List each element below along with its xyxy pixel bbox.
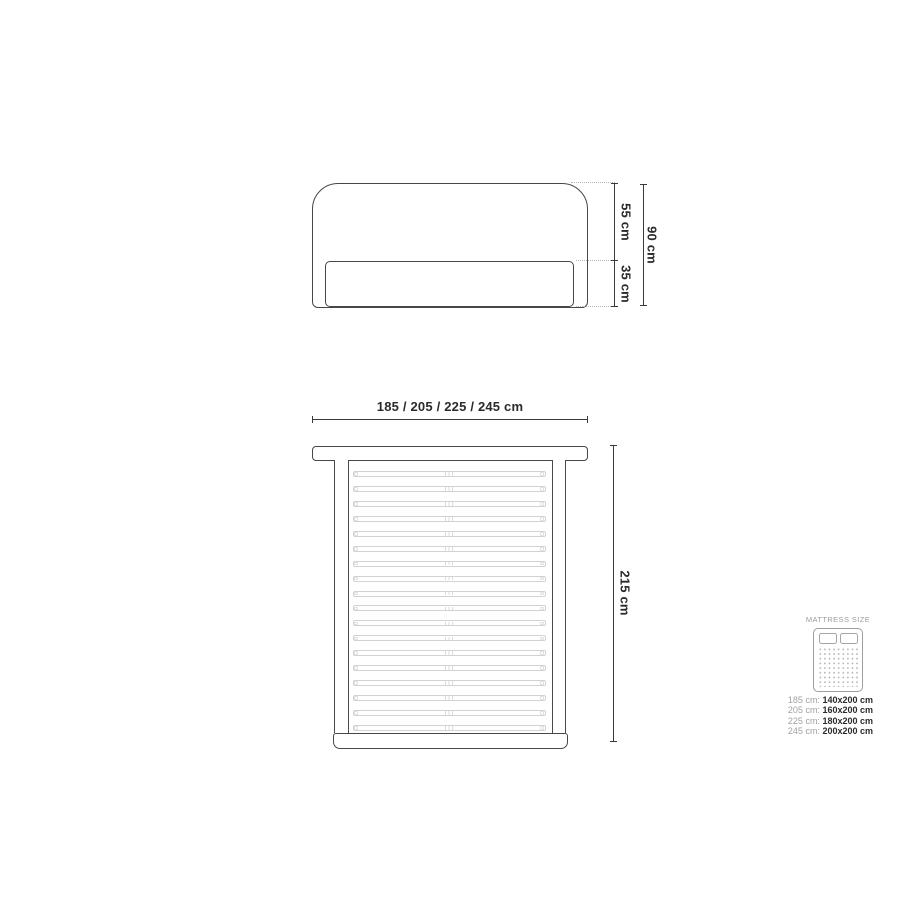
dimension-line-55-35 — [614, 183, 615, 307]
slat — [353, 501, 547, 507]
mattress-size-value: 200x200 cm — [822, 726, 873, 736]
bed-length-label: 215 cm — [618, 570, 633, 615]
right-side-rail — [552, 460, 567, 734]
slat — [353, 531, 547, 537]
dimension-tick — [640, 305, 647, 306]
slat-holder-right-icon — [540, 711, 544, 715]
slat — [353, 650, 547, 656]
mattress-size-value: 140x200 cm — [822, 695, 873, 705]
mattress-dots-pattern — [818, 647, 858, 687]
slat-holder-right-icon — [540, 637, 544, 641]
slat — [353, 546, 547, 552]
slat-center-marks — [445, 487, 453, 491]
slat-center-marks — [445, 696, 453, 700]
slat-holder-right-icon — [540, 502, 544, 506]
slat-center-marks — [445, 562, 453, 566]
slat — [353, 591, 547, 597]
extension-line-top — [571, 182, 615, 183]
slat-holder-left-icon — [354, 681, 358, 685]
slat-holder-left-icon — [354, 577, 358, 581]
slat-center-marks — [445, 681, 453, 685]
slat — [353, 710, 547, 716]
dimension-tick — [640, 184, 647, 185]
mattress-size-table: 185 cm: 140x200 cm 205 cm: 160x200 cm 22… — [760, 695, 873, 736]
dimension-tick — [611, 260, 618, 261]
bed-dimension-diagram: 55 cm 35 cm 90 cm 185 / 205 / 225 / 245 … — [0, 0, 900, 900]
mattress-icon — [813, 628, 863, 692]
headboard-top-outline — [312, 446, 588, 461]
dimension-tick — [611, 306, 618, 307]
mattress-size-row: 225 cm: 180x200 cm — [760, 716, 873, 726]
slat-holder-left-icon — [354, 666, 358, 670]
slat-holder-left-icon — [354, 547, 358, 551]
mattress-size-row: 245 cm: 200x200 cm — [760, 726, 873, 736]
dimension-line-width — [312, 419, 588, 420]
bed-width-value: 185 cm: — [788, 695, 820, 705]
slat-holder-right-icon — [540, 487, 544, 491]
slat-center-marks — [445, 577, 453, 581]
slat-holder-right-icon — [540, 517, 544, 521]
slat — [353, 561, 547, 567]
slat-center-marks — [445, 472, 453, 476]
bed-width-value: 205 cm: — [788, 705, 820, 715]
slat-holder-right-icon — [540, 622, 544, 626]
slat-center-marks — [445, 726, 453, 730]
bed-width-value: 225 cm: — [788, 716, 820, 726]
bed-width-label: 185 / 205 / 225 / 245 cm — [312, 399, 588, 414]
slat-holder-right-icon — [540, 696, 544, 700]
slat — [353, 620, 547, 626]
extension-line-bottom — [576, 306, 615, 307]
slat — [353, 576, 547, 582]
slat-holder-left-icon — [354, 651, 358, 655]
slat-center-marks — [445, 592, 453, 596]
mattress-size-value: 160x200 cm — [822, 705, 873, 715]
total-height-label: 90 cm — [645, 226, 660, 264]
pillow-left-icon — [819, 633, 838, 644]
slat-center-marks — [445, 711, 453, 715]
slat-center-marks — [445, 651, 453, 655]
slat — [353, 680, 547, 686]
mattress-size-row: 205 cm: 160x200 cm — [760, 705, 873, 715]
slat-center-marks — [445, 607, 453, 611]
slat-holder-left-icon — [354, 607, 358, 611]
slat-center-marks — [445, 532, 453, 536]
slat-center-marks — [445, 666, 453, 670]
slat-center-marks — [445, 502, 453, 506]
slat-holder-right-icon — [540, 472, 544, 476]
slat-center-marks — [445, 517, 453, 521]
slat-holder-left-icon — [354, 637, 358, 641]
slat — [353, 486, 547, 492]
slat — [353, 605, 547, 611]
slat-holder-right-icon — [540, 607, 544, 611]
slat — [353, 695, 547, 701]
slat — [353, 516, 547, 522]
dimension-tick — [587, 416, 588, 423]
dimension-line-215 — [613, 445, 614, 742]
slat-holder-left-icon — [354, 562, 358, 566]
dimension-tick — [611, 183, 618, 184]
left-side-rail — [334, 460, 349, 734]
slat — [353, 471, 547, 477]
dimension-tick — [312, 416, 313, 423]
slat-holder-right-icon — [540, 562, 544, 566]
bed-width-value: 245 cm: — [788, 726, 820, 736]
mattress-size-title: MATTRESS SIZE — [802, 615, 874, 624]
footboard-outline — [333, 733, 568, 749]
slat — [353, 725, 547, 731]
mattress-size-row: 185 cm: 140x200 cm — [760, 695, 873, 705]
extension-line-middle — [576, 260, 615, 261]
slat-holder-left-icon — [354, 532, 358, 536]
upper-height-label: 55 cm — [619, 203, 634, 241]
slat-holder-right-icon — [540, 547, 544, 551]
slat — [353, 635, 547, 641]
slat-holder-right-icon — [540, 681, 544, 685]
slat-holder-left-icon — [354, 696, 358, 700]
slat-area — [353, 471, 547, 731]
slat-center-marks — [445, 547, 453, 551]
slat-holder-left-icon — [354, 502, 358, 506]
slat-holder-right-icon — [540, 592, 544, 596]
slat-holder-right-icon — [540, 532, 544, 536]
slat-holder-left-icon — [354, 622, 358, 626]
slat-holder-left-icon — [354, 592, 358, 596]
slat-holder-right-icon — [540, 651, 544, 655]
slat-center-marks — [445, 622, 453, 626]
mattress-size-value: 180x200 cm — [822, 716, 873, 726]
dimension-tick — [610, 741, 617, 742]
slat-holder-left-icon — [354, 487, 358, 491]
dimension-tick — [610, 445, 617, 446]
slat-holder-right-icon — [540, 726, 544, 730]
slat-holder-right-icon — [540, 577, 544, 581]
lower-height-label: 35 cm — [619, 265, 634, 303]
pillow-right-icon — [840, 633, 859, 644]
bed-base-front-outline — [325, 261, 574, 307]
slat-holder-left-icon — [354, 726, 358, 730]
slat-holder-left-icon — [354, 711, 358, 715]
slat-holder-right-icon — [540, 666, 544, 670]
slat-center-marks — [445, 637, 453, 641]
slat-holder-left-icon — [354, 517, 358, 521]
slat — [353, 665, 547, 671]
slat-holder-left-icon — [354, 472, 358, 476]
